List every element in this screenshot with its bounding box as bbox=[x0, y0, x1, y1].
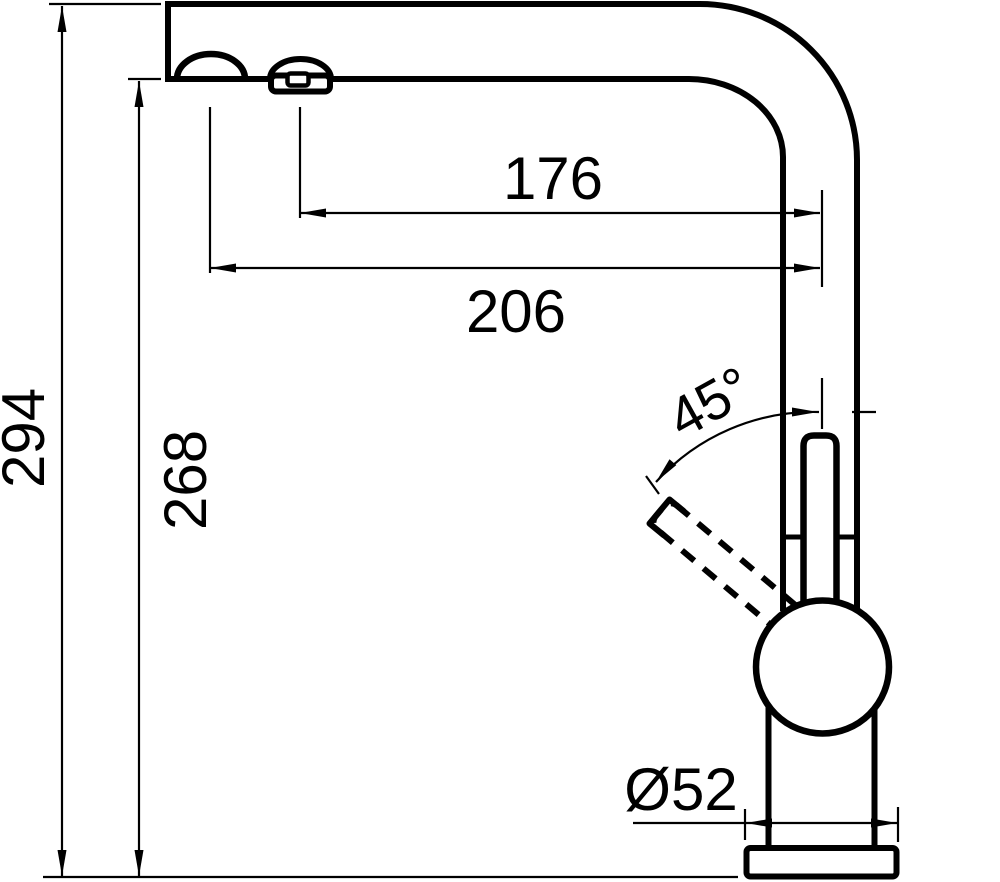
dimension-spout-underside-height: 268 bbox=[128, 79, 219, 876]
dim-label-294: 294 bbox=[0, 388, 57, 488]
faucet-dimension-drawing: 294 268 176 206 45° bbox=[0, 0, 1000, 882]
faucet-body bbox=[165, 1, 897, 877]
spout-inner-edge bbox=[165, 79, 783, 611]
arrow-left-176 bbox=[300, 209, 326, 218]
dimension-lever-angle: 45° bbox=[646, 354, 876, 494]
angle-end-tick bbox=[646, 476, 659, 494]
ball-joint-circle bbox=[756, 601, 889, 734]
arrow-down-268 bbox=[135, 850, 144, 876]
dim-label-206: 206 bbox=[466, 278, 566, 345]
dim-label-45: 45° bbox=[657, 354, 762, 450]
arrow-down-294 bbox=[58, 850, 67, 876]
drawing-canvas: 294 268 176 206 45° bbox=[0, 0, 1000, 882]
dim-label-268: 268 bbox=[152, 430, 219, 530]
arrow-right-52 bbox=[871, 819, 897, 828]
dimension-reach-outer: 206 bbox=[210, 107, 820, 345]
arrow-up-294 bbox=[58, 6, 67, 32]
dimension-reach-inner: 176 bbox=[300, 107, 822, 287]
angle-arrow-left bbox=[656, 459, 676, 482]
dim-label-176: 176 bbox=[503, 145, 603, 212]
arrow-left-52 bbox=[746, 819, 772, 828]
aerator-dome bbox=[177, 54, 245, 79]
arrow-up-268 bbox=[135, 81, 144, 107]
base-plate bbox=[747, 848, 897, 877]
lever-handle-phantom-endcap bbox=[650, 500, 684, 536]
diverter-notch bbox=[288, 74, 309, 86]
lever-handle-upright bbox=[804, 436, 837, 603]
arrow-left-206 bbox=[210, 264, 236, 273]
arrow-right-206 bbox=[794, 264, 820, 273]
arrow-right-176 bbox=[794, 209, 820, 218]
dim-label-52: Ø52 bbox=[624, 756, 737, 823]
dimension-base-diameter: Ø52 bbox=[624, 756, 898, 842]
dimension-overall-height: 294 bbox=[0, 4, 161, 876]
angle-arrow-right bbox=[792, 408, 818, 417]
